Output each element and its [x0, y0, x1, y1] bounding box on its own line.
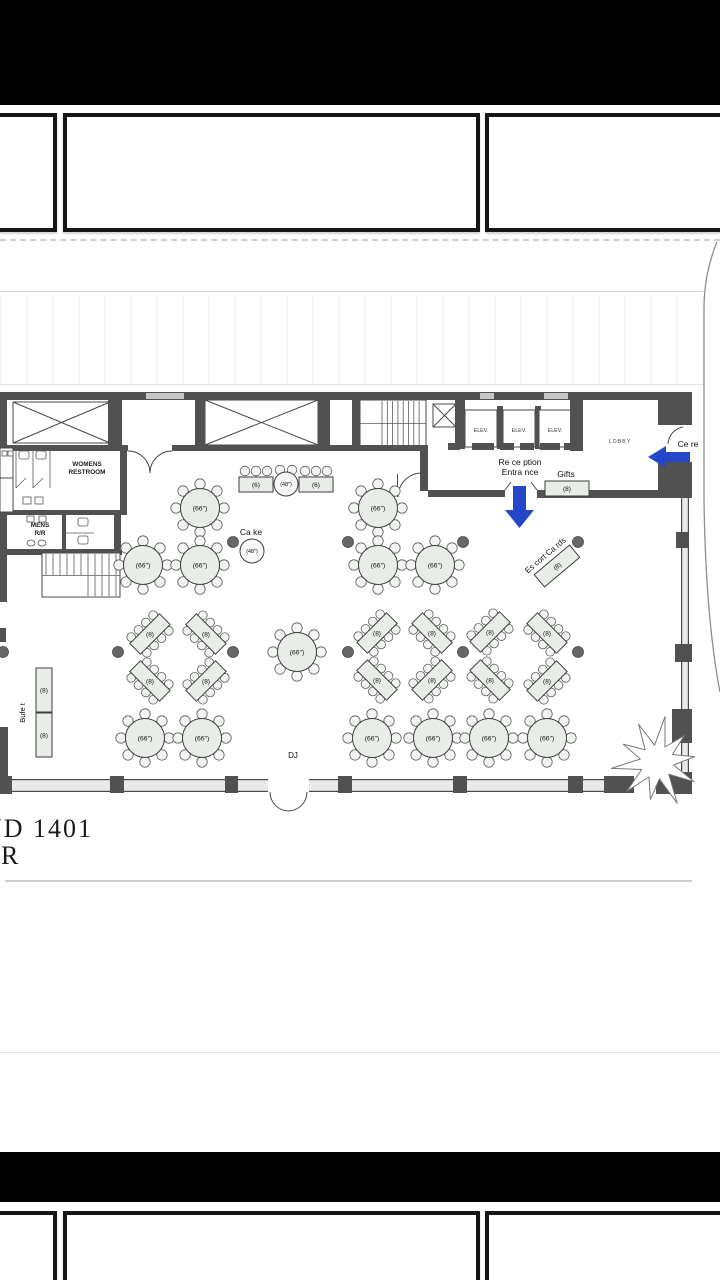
chair [195, 536, 205, 546]
page-thumbnail[interactable] [0, 1211, 57, 1280]
table-round-66: (66") [460, 709, 518, 767]
column-dot [573, 537, 584, 548]
annotation-reception-entrance: Re ce ptionEntra nce [499, 457, 542, 477]
chair [404, 733, 414, 743]
floor-plan-drawing: (66")(66")(66")(66")(66")(66")(66")(66")… [0, 0, 720, 1280]
head-table-6: (6) [299, 466, 333, 492]
table-rect-8: (8) [180, 608, 231, 659]
table-rect-8: (8) [521, 655, 572, 706]
chair [508, 733, 518, 743]
sheet-title: ND 1401 R [0, 815, 93, 869]
chair [460, 733, 470, 743]
svg-text:(8): (8) [428, 630, 436, 637]
chair [367, 757, 377, 767]
buffet-label: Bufe t [18, 702, 27, 723]
room-label-womens-restroom: WOMENSRESTROOM [69, 461, 106, 476]
table-rect-8: (8) [521, 607, 572, 658]
chair [391, 733, 401, 743]
room-label-elevator-2: ELEV. [512, 428, 527, 434]
svg-text:(8): (8) [486, 629, 494, 636]
page-thumbnail[interactable] [485, 1211, 720, 1280]
cake-table: (48") [240, 539, 264, 563]
table-rect-8: (8) [124, 608, 175, 659]
svg-text:(66"): (66") [138, 735, 153, 742]
chair [171, 560, 181, 570]
chair [430, 584, 440, 594]
chair [171, 503, 181, 513]
chair [268, 647, 278, 657]
escort-cards-table: (8)Es cort Ca rds [523, 536, 580, 590]
annotation-dj: DJ [288, 751, 298, 760]
svg-text:(66"): (66") [136, 562, 151, 569]
chair [311, 466, 321, 476]
svg-text:(48"): (48") [280, 482, 292, 488]
chair [373, 584, 383, 594]
table-round-66: (66") [343, 709, 401, 767]
table-round-66: (66") [518, 709, 576, 767]
chair [292, 623, 302, 633]
svg-text:(8): (8) [146, 678, 154, 685]
svg-text:(8): (8) [373, 677, 381, 684]
chair [428, 709, 438, 719]
chair [251, 466, 261, 476]
svg-text:(6): (6) [252, 482, 260, 489]
chair [292, 671, 302, 681]
chair [140, 709, 150, 719]
table-round-66: (66") [404, 709, 462, 767]
chair [406, 560, 416, 570]
chair [397, 503, 407, 513]
svg-text:(66"): (66") [195, 735, 210, 742]
column-dot [228, 647, 239, 658]
svg-text:(8): (8) [40, 687, 48, 694]
table-round-66: (66") [268, 623, 326, 681]
svg-text:(8): (8) [40, 732, 48, 739]
chair [195, 479, 205, 489]
svg-text:(8): (8) [428, 677, 436, 684]
table-round-66: (66") [171, 536, 229, 594]
table-round-66: (66") [171, 479, 229, 537]
table-rect-8: (8) [406, 654, 457, 705]
table-rect-8: (8) [464, 654, 515, 705]
column-dot [343, 537, 354, 548]
svg-text:(66"): (66") [290, 649, 305, 656]
svg-text:(66"): (66") [426, 735, 441, 742]
chair [240, 466, 250, 476]
svg-text:(66"): (66") [428, 562, 443, 569]
chair [116, 733, 126, 743]
table-round-66: (66") [173, 709, 231, 767]
column-dot [113, 647, 124, 658]
table-rect-8: (8) [124, 655, 175, 706]
table-round-66: (66") [349, 536, 407, 594]
chair [197, 709, 207, 719]
chair [484, 757, 494, 767]
column-dot [0, 647, 9, 658]
svg-text:(8): (8) [202, 631, 210, 638]
plan-content: (66")(66")(66")(66")(66")(66")(66")(66")… [0, 428, 699, 767]
head-table-48: (48") [274, 465, 298, 496]
table-rect-8: (8) [406, 607, 457, 658]
chair [197, 757, 207, 767]
chair [138, 536, 148, 546]
chair [349, 560, 359, 570]
chair [219, 560, 229, 570]
chair [373, 536, 383, 546]
chair [300, 466, 310, 476]
chair [322, 466, 332, 476]
svg-text:(6): (6) [312, 482, 320, 489]
chair [195, 584, 205, 594]
svg-text:(8): (8) [202, 678, 210, 685]
sheet-title-line2: R [0, 842, 93, 869]
chair [428, 757, 438, 767]
chair [373, 479, 383, 489]
svg-text:(66"): (66") [371, 562, 386, 569]
table-rect-8: (8) [351, 607, 402, 658]
room-label-lobby: LOBBY [609, 439, 632, 445]
chair [542, 757, 552, 767]
chair [316, 647, 326, 657]
room-label-mens-restroom: MENSR/R [31, 522, 50, 537]
table-round-66: (66") [116, 709, 174, 767]
photo-viewer-screen: (66")(66")(66")(66")(66")(66")(66")(66")… [0, 0, 720, 1280]
svg-text:(66"): (66") [365, 735, 380, 742]
column-dot [458, 647, 469, 658]
page-thumbnail[interactable] [63, 1211, 480, 1280]
svg-text:(8): (8) [373, 630, 381, 637]
chair [349, 503, 359, 513]
column-dot [573, 647, 584, 658]
chair [262, 466, 272, 476]
svg-text:(8): (8) [543, 678, 551, 685]
chair [114, 560, 124, 570]
reception-entrance-arrow [505, 486, 534, 528]
gifts-table: (8) [545, 481, 589, 496]
svg-text:(66"): (66") [540, 735, 555, 742]
room-label-elevator-1: ELEV. [474, 428, 489, 434]
chair [454, 560, 464, 570]
table-round-66: (66") [406, 536, 464, 594]
chair [173, 733, 183, 743]
table-round-66: (66") [114, 536, 172, 594]
chair [367, 709, 377, 719]
chair [542, 709, 552, 719]
table-round-66: (66") [349, 479, 407, 537]
svg-text:(8): (8) [543, 630, 551, 637]
svg-text:(8): (8) [146, 631, 154, 638]
buffet-table: (8) [36, 668, 52, 712]
annotation-gifts: Gifts [557, 469, 574, 479]
chair [430, 536, 440, 546]
svg-text:(66"): (66") [371, 505, 386, 512]
head-table-6: (6) [239, 466, 273, 492]
annotation-ceremony: Ce re [678, 439, 699, 449]
chair [518, 733, 528, 743]
chair [343, 733, 353, 743]
column-dot [458, 537, 469, 548]
chair [566, 733, 576, 743]
sheet-title-line1: ND 1401 [0, 815, 93, 842]
chair [484, 709, 494, 719]
chair [219, 503, 229, 513]
table-rect-8: (8) [180, 655, 231, 706]
annotation-cake: Ca ke [240, 527, 262, 537]
buffet-table: (8) [36, 713, 52, 757]
column-dot [228, 537, 239, 548]
column-dot [343, 647, 354, 658]
svg-text:(48"): (48") [246, 549, 258, 555]
svg-text:(66"): (66") [193, 562, 208, 569]
table-rect-8: (8) [464, 606, 515, 657]
svg-text:(8): (8) [563, 486, 571, 493]
chair [138, 584, 148, 594]
chair [140, 757, 150, 767]
svg-text:(66"): (66") [482, 735, 497, 742]
room-label-elevator-3: ELEV. [548, 428, 563, 434]
chair [221, 733, 231, 743]
letterbox-bottom [0, 1152, 720, 1202]
svg-text:(66"): (66") [193, 505, 208, 512]
svg-text:(8): (8) [486, 677, 494, 684]
table-rect-8: (8) [351, 654, 402, 705]
